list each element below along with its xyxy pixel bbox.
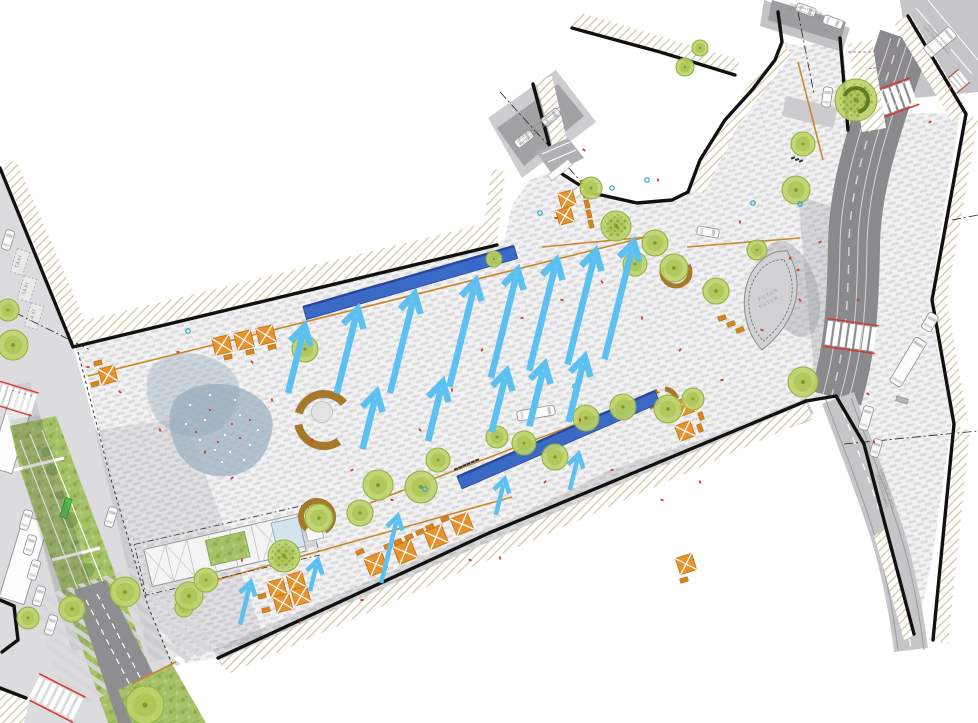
tree-trunk-dot	[522, 441, 525, 444]
bike-rack-marker	[610, 186, 614, 190]
cafe-chair	[679, 577, 688, 584]
red-marker	[657, 178, 659, 182]
tree	[0, 299, 19, 321]
tree-trunk-dot	[376, 483, 380, 487]
red-dot	[249, 419, 251, 421]
red-marker	[451, 388, 453, 391]
tree	[59, 596, 85, 622]
tree	[676, 58, 694, 76]
tree-trunk-dot	[590, 187, 593, 190]
tree	[791, 132, 815, 156]
sparkle-dot	[185, 423, 187, 425]
tree-trunk-dot	[187, 594, 191, 598]
tree	[17, 607, 39, 629]
sparkle-dot	[199, 439, 201, 441]
tree	[788, 367, 818, 397]
cafe-table	[212, 335, 232, 355]
site-plan: TAXITAXITAXIRUE PIERRE TIMMERMANSPIETER …	[0, 0, 978, 723]
cafe-table	[98, 365, 118, 385]
tree-trunk-dot	[70, 607, 73, 610]
tree-trunk-dot	[684, 66, 686, 68]
tree	[363, 470, 393, 500]
red-dot	[231, 423, 233, 425]
sparkle-dot	[189, 404, 191, 406]
tree-trunk-dot	[303, 347, 306, 350]
tree-trunk-dot	[496, 436, 499, 439]
tree	[682, 388, 704, 410]
red-dot	[209, 409, 211, 411]
red-marker	[176, 351, 179, 353]
tree-trunk-dot	[714, 289, 717, 292]
cafe-table	[273, 593, 293, 613]
tree-trunk-dot	[621, 405, 624, 408]
tree-trunk-dot	[699, 47, 701, 49]
tree	[126, 686, 164, 723]
tree-trunk-dot	[672, 266, 676, 270]
tree	[601, 211, 631, 241]
tree	[703, 278, 729, 304]
tree	[305, 504, 333, 532]
red-dot	[195, 431, 197, 433]
tree	[610, 394, 636, 420]
sparkle-dot	[224, 434, 226, 436]
red-marker	[86, 366, 89, 368]
red-dot	[217, 441, 219, 443]
tree-trunk-dot	[7, 309, 10, 312]
tree-texture	[271, 543, 297, 569]
tree-trunk-dot	[436, 458, 439, 461]
sparkle-dot	[229, 451, 231, 453]
tree	[405, 471, 437, 503]
cafe-table	[234, 330, 254, 350]
cafe-table	[558, 190, 576, 208]
tree	[692, 40, 708, 56]
sparkle-dot	[214, 449, 216, 451]
hatch-band	[572, 12, 740, 73]
tree	[580, 177, 602, 199]
tree	[426, 448, 450, 472]
tree-trunk-dot	[11, 343, 15, 347]
tree-trunk-dot	[756, 249, 759, 252]
hatch-band	[482, 168, 505, 243]
cafe-table	[675, 553, 696, 574]
bike-rack-marker	[645, 178, 649, 182]
red-marker	[641, 316, 643, 319]
cafe-table	[291, 586, 311, 606]
red-dot	[239, 437, 241, 439]
red-marker	[856, 299, 859, 301]
tree	[782, 176, 810, 204]
tree	[642, 230, 668, 256]
tree-trunk-dot	[204, 578, 207, 581]
sparkle-dot	[221, 461, 223, 463]
tree-trunk-dot	[123, 590, 127, 594]
red-marker	[579, 418, 581, 421]
tree	[0, 330, 28, 360]
sparkle-dot	[249, 444, 251, 446]
cafe-table	[556, 207, 574, 225]
tree-trunk-dot	[358, 511, 361, 514]
sparkle-dot	[243, 459, 245, 461]
paved-circle	[312, 402, 333, 423]
sparkle-dot	[204, 419, 206, 421]
tree	[194, 568, 218, 592]
red-marker	[554, 217, 557, 219]
tree	[512, 431, 536, 455]
tree-trunk-dot	[584, 416, 587, 419]
sparkle-dot	[257, 429, 259, 431]
tree	[347, 500, 373, 526]
tree	[486, 251, 502, 267]
tree-trunk-dot	[794, 188, 798, 192]
tree-trunk-dot	[801, 142, 804, 145]
sparkle-dot	[239, 414, 241, 416]
tree	[573, 405, 599, 431]
tree-trunk-dot	[27, 617, 30, 620]
tree-trunk-dot	[801, 380, 805, 384]
red-marker	[660, 499, 664, 502]
tree-trunk-dot	[653, 241, 656, 244]
tree-texture	[604, 214, 628, 238]
tree-trunk-dot	[317, 516, 321, 520]
tree	[110, 577, 140, 607]
red-marker	[582, 148, 586, 151]
tree-trunk-dot	[692, 398, 695, 401]
tree-trunk-dot	[633, 262, 636, 265]
cafe-table	[256, 325, 276, 345]
sparkle-dot	[234, 399, 236, 401]
sparkle-dot	[209, 394, 211, 396]
tree	[747, 240, 767, 260]
tree	[660, 254, 688, 282]
tree-trunk-dot	[666, 407, 670, 411]
tree	[654, 395, 682, 423]
tree-trunk-dot	[553, 455, 556, 458]
tree-trunk-dot	[493, 258, 495, 260]
red-marker	[499, 556, 502, 560]
red-marker	[698, 480, 701, 484]
site-plan-canvas: TAXITAXITAXIRUE PIERRE TIMMERMANSPIETER …	[0, 0, 978, 723]
tree	[542, 444, 568, 470]
tree	[268, 540, 300, 572]
tree-trunk-dot	[143, 703, 148, 708]
tree	[835, 79, 877, 121]
